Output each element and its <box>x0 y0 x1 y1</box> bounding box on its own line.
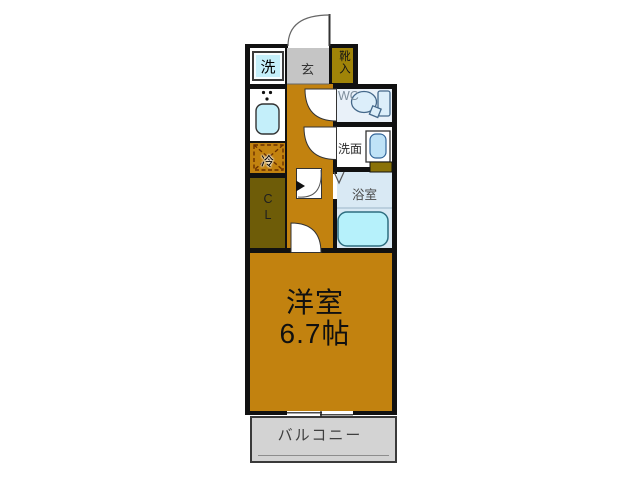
main-room-label: 洋室 6.7帖 <box>244 287 386 349</box>
washing-machine-pan-icon: 洗 <box>252 51 284 81</box>
room-size: 6.7帖 <box>244 318 386 349</box>
hallway <box>287 84 333 248</box>
bathroom-label: 浴室 <box>352 184 377 203</box>
floor-plan: 洗 <box>0 0 640 480</box>
balcony-label: バルコニー <box>255 424 385 445</box>
room-name: 洋室 <box>244 287 386 318</box>
wc-label: WC <box>338 89 359 103</box>
entrance-label: 玄 <box>301 59 314 78</box>
balcony-edge-line <box>258 455 389 456</box>
shoe-storage-label: 靴入 <box>336 50 352 82</box>
washstand-label: 洗面 <box>338 140 362 157</box>
kitchen-area <box>250 89 285 141</box>
closet-label: CL <box>261 192 275 224</box>
entrance-door-icon <box>288 14 330 48</box>
refrigerator-label: 冷 <box>261 151 274 170</box>
washer-label: 洗 <box>260 56 275 77</box>
